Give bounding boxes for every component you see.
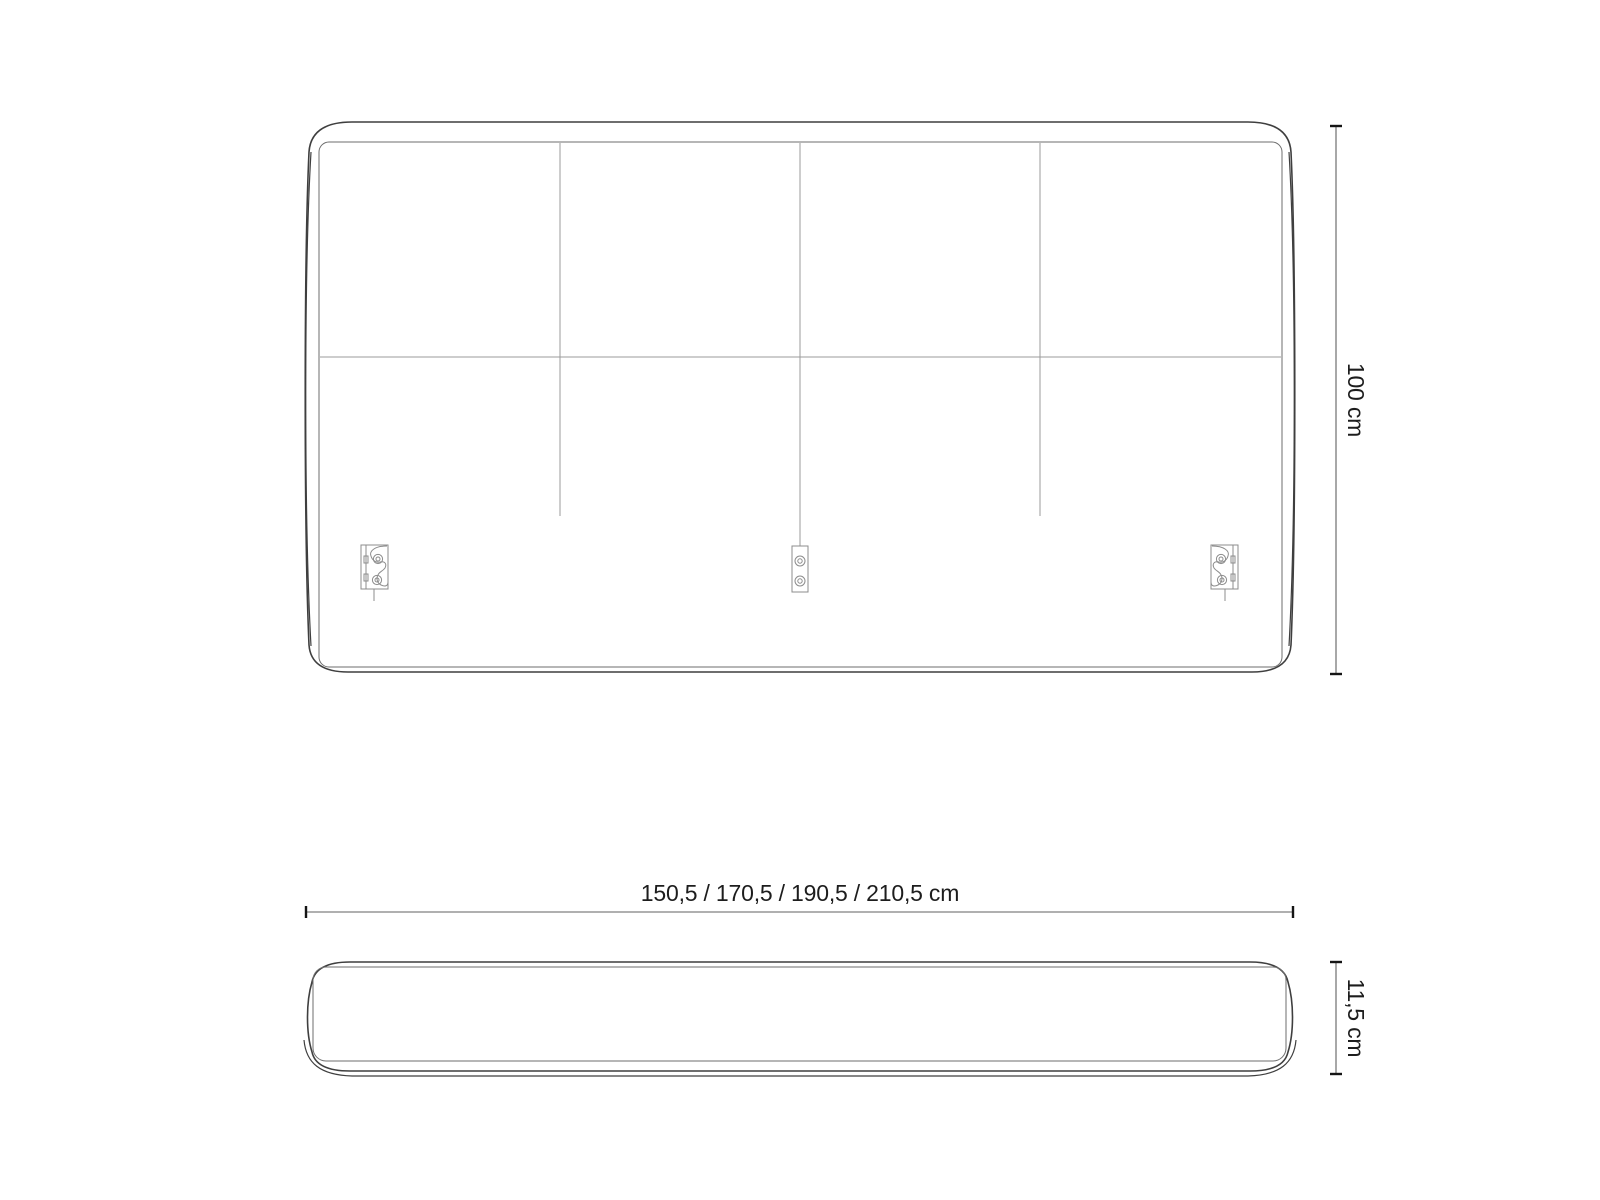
bracket-plate [361, 545, 388, 589]
width-dimension: 150,5 / 170,5 / 190,5 / 210,5 cm [306, 880, 1293, 918]
headboard-technical-drawing: 100 cm 150,5 / 170,5 / 190,5 / 210,5 cm … [0, 0, 1600, 1200]
width-dimension-label: 150,5 / 170,5 / 190,5 / 210,5 cm [641, 880, 959, 906]
height-dimension-label: 100 cm [1343, 363, 1369, 437]
middle-mounting-bracket [792, 546, 808, 592]
left-mounting-bracket [361, 545, 388, 601]
drawing-canvas: 100 cm 150,5 / 170,5 / 190,5 / 210,5 cm … [0, 0, 1600, 1200]
front-view [305, 122, 1295, 672]
right-mounting-bracket [1211, 545, 1238, 601]
bracket-plate [792, 546, 808, 592]
height-dimension: 100 cm [1330, 126, 1369, 674]
bracket-plate [1211, 545, 1238, 589]
profile-outer-outline [308, 962, 1293, 1071]
depth-dimension-label: 11,5 cm [1343, 979, 1369, 1058]
side-profile-view [304, 962, 1296, 1076]
profile-inner-panel [313, 967, 1286, 1061]
depth-dimension: 11,5 cm [1330, 962, 1369, 1074]
